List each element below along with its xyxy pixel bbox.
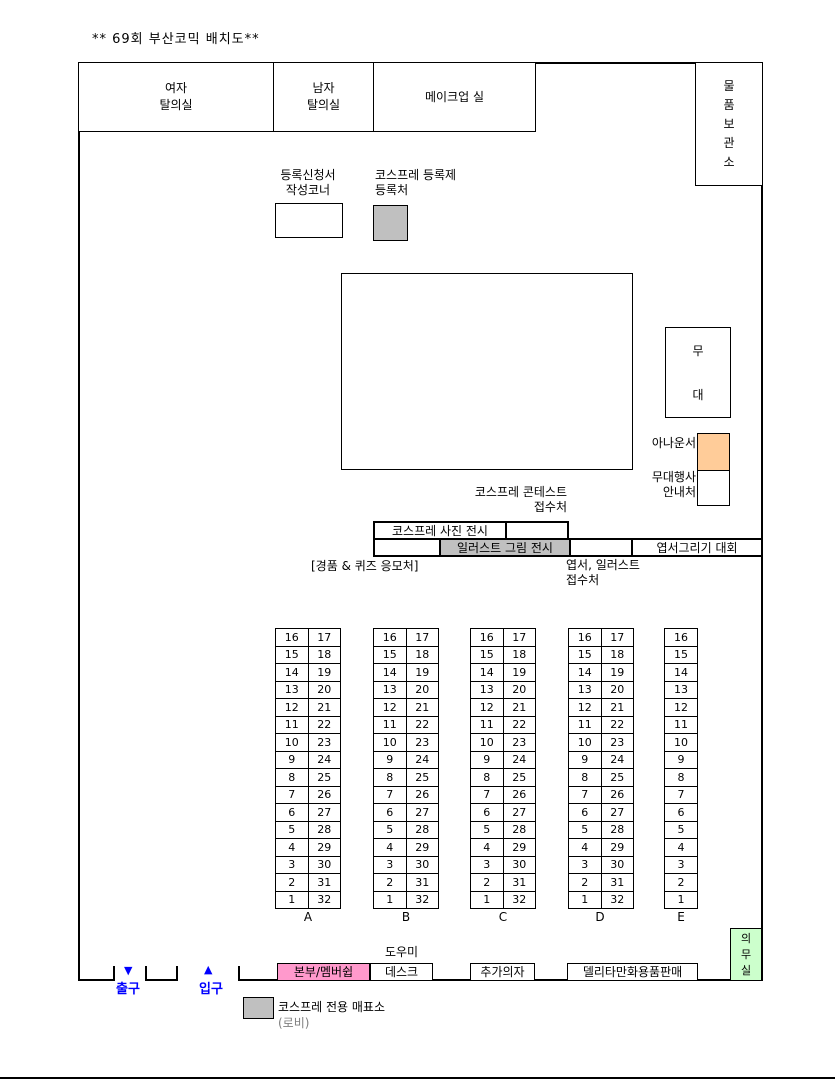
stage-event-info-box [697, 470, 730, 506]
seat-cell: 32 [503, 892, 536, 909]
seat-cell: 14 [665, 664, 697, 681]
seat-row: 14 [665, 664, 697, 682]
seat-row: 231 [471, 874, 535, 892]
seat-row: 132 [471, 892, 535, 909]
seat-cell: 16 [374, 629, 406, 646]
seat-cell: 4 [471, 839, 503, 856]
seat-cell: 32 [308, 892, 341, 909]
room-women-changing: 여자 탈의실 [78, 62, 274, 132]
seat-cell: 5 [569, 822, 601, 839]
seat-cell: 26 [601, 787, 634, 804]
seat-row: 5 [665, 822, 697, 840]
seat-cell: 12 [276, 699, 308, 716]
seat-cell: 12 [471, 699, 503, 716]
seat-row: 429 [276, 839, 340, 857]
seat-cell: 25 [503, 769, 536, 786]
seat-cell: 15 [569, 647, 601, 664]
seat-row: 9 [665, 752, 697, 770]
seat-cell: 25 [308, 769, 341, 786]
seat-row: 231 [374, 874, 438, 892]
seat-cell: 6 [471, 804, 503, 821]
seat-row: 231 [276, 874, 340, 892]
seat-cell: 30 [601, 857, 634, 874]
illust-exhibit-cell: 일러스트 그림 전시 [439, 540, 569, 555]
seat-cell: 26 [406, 787, 439, 804]
seat-cell: 23 [601, 734, 634, 751]
seat-row: 1221 [374, 699, 438, 717]
seat-row: 330 [471, 857, 535, 875]
seat-cell: 4 [569, 839, 601, 856]
page-bottom-rule [0, 1077, 835, 1079]
seat-row: 924 [276, 752, 340, 770]
wall-right [761, 62, 763, 981]
seat-row: 1122 [276, 717, 340, 735]
seat-cell: 7 [471, 787, 503, 804]
stage-event-info-label: 무대행사 안내처 [632, 470, 696, 500]
seat-cell: 31 [308, 874, 341, 891]
seat-cell: 12 [569, 699, 601, 716]
wall-left [78, 62, 80, 981]
seat-cell: 27 [308, 804, 341, 821]
seat-cell: 8 [569, 769, 601, 786]
seat-cell: 8 [374, 769, 406, 786]
seat-row: 627 [276, 804, 340, 822]
seat-cell: 21 [503, 699, 536, 716]
seat-row: 924 [471, 752, 535, 770]
seat-cell: 5 [276, 822, 308, 839]
seat-cell: 9 [471, 752, 503, 769]
hq-membership-box: 본부/멤버쉽 [277, 963, 370, 981]
delita-sales-box: 델리타만화용품판매 [567, 963, 698, 981]
seat-cell: 26 [308, 787, 341, 804]
ticket-booth-box [243, 997, 274, 1019]
seat-cell: 24 [503, 752, 536, 769]
seat-row: 1221 [471, 699, 535, 717]
seat-cell: 13 [374, 682, 406, 699]
seat-row: 132 [374, 892, 438, 909]
seat-cell: 5 [665, 822, 697, 839]
seat-cell: 3 [471, 857, 503, 874]
seat-row: 1419 [471, 664, 535, 682]
seat-cell: 29 [601, 839, 634, 856]
seat-cell: 19 [503, 664, 536, 681]
seat-row: 1617 [276, 629, 340, 647]
seat-cell: 32 [406, 892, 439, 909]
entrance-label: 입구 [191, 982, 231, 997]
seat-cell: 14 [471, 664, 503, 681]
seat-cell: 12 [665, 699, 697, 716]
seat-cell: 13 [665, 682, 697, 699]
table-label-a: A [293, 910, 323, 925]
seat-cell: 22 [406, 717, 439, 734]
seat-cell: 22 [308, 717, 341, 734]
door-jamb [145, 966, 147, 981]
seat-cell: 15 [471, 647, 503, 664]
cosplay-registration-box [373, 205, 408, 241]
seat-cell: 2 [276, 874, 308, 891]
seat-cell: 9 [276, 752, 308, 769]
floorplan-page: ** 69회 부산코믹 배치도** 여자 탈의실 남자 탈의실 메이크업 실 물… [0, 0, 835, 1081]
room-makeup: 메이크업 실 [373, 62, 536, 132]
seat-cell: 10 [569, 734, 601, 751]
seat-cell: 27 [406, 804, 439, 821]
seat-row: 13 [665, 682, 697, 700]
infirmary-label: 의무실 [739, 931, 753, 979]
seat-cell: 23 [503, 734, 536, 751]
seat-table-a: 1617151814191320122111221023924825726627… [275, 628, 341, 909]
seat-cell: 5 [374, 822, 406, 839]
exit-label: 출구 [108, 982, 148, 997]
seat-row: 1023 [471, 734, 535, 752]
seat-row: 1 [665, 892, 697, 909]
seat-cell: 31 [601, 874, 634, 891]
seat-cell: 14 [374, 664, 406, 681]
seat-cell: 4 [665, 839, 697, 856]
seat-cell: 10 [374, 734, 406, 751]
seat-cell: 9 [665, 752, 697, 769]
seat-cell: 20 [601, 682, 634, 699]
seat-row: 1122 [374, 717, 438, 735]
seat-cell: 4 [374, 839, 406, 856]
seat-cell: 1 [374, 892, 406, 909]
seat-cell: 16 [276, 629, 308, 646]
seat-row: 11 [665, 717, 697, 735]
seat-cell: 1 [471, 892, 503, 909]
seat-row: 1617 [374, 629, 438, 647]
seat-cell: 25 [406, 769, 439, 786]
seat-cell: 20 [308, 682, 341, 699]
seat-cell: 32 [601, 892, 634, 909]
seat-cell: 16 [569, 629, 601, 646]
extra-chairs-box: 추가의자 [470, 963, 535, 981]
seat-cell: 31 [503, 874, 536, 891]
entrance-arrow-icon: ▲ [204, 963, 212, 976]
seat-cell: 15 [276, 647, 308, 664]
seat-cell: 19 [308, 664, 341, 681]
seat-cell: 23 [406, 734, 439, 751]
seat-cell: 10 [665, 734, 697, 751]
seat-cell: 13 [276, 682, 308, 699]
seat-row: 726 [276, 787, 340, 805]
seat-cell: 23 [308, 734, 341, 751]
seat-row: 924 [569, 752, 633, 770]
seat-row: 825 [471, 769, 535, 787]
seat-row: 528 [276, 822, 340, 840]
seat-cell: 18 [406, 647, 439, 664]
seat-row: 132 [276, 892, 340, 909]
seat-cell: 5 [471, 822, 503, 839]
seat-row: 1023 [276, 734, 340, 752]
helper-desk-box: 데스크 [370, 963, 433, 981]
seat-cell: 3 [374, 857, 406, 874]
seat-row: 825 [276, 769, 340, 787]
seat-table-c: 1617151814191320122111221023924825726627… [470, 628, 536, 909]
seat-cell: 28 [308, 822, 341, 839]
seat-table-b: 1617151814191320122111221023924825726627… [373, 628, 439, 909]
stage-label: 무대 [691, 329, 705, 417]
contest-reception-label: 코스프레 콘테스트 접수처 [440, 485, 567, 515]
seat-row: 1617 [569, 629, 633, 647]
seat-cell: 1 [276, 892, 308, 909]
seat-row: 528 [569, 822, 633, 840]
seat-cell: 2 [665, 874, 697, 891]
seat-row: 1419 [276, 664, 340, 682]
seat-cell: 11 [665, 717, 697, 734]
seat-cell: 29 [308, 839, 341, 856]
seat-cell: 31 [406, 874, 439, 891]
empty-cell [375, 540, 439, 555]
table-label-c: C [488, 910, 518, 925]
seat-cell: 7 [276, 787, 308, 804]
seat-cell: 26 [503, 787, 536, 804]
seat-cell: 3 [276, 857, 308, 874]
seat-row: 1518 [276, 647, 340, 665]
seat-cell: 14 [276, 664, 308, 681]
seat-cell: 27 [503, 804, 536, 821]
seat-row: 6 [665, 804, 697, 822]
seat-cell: 12 [374, 699, 406, 716]
seat-row: 1122 [471, 717, 535, 735]
seat-cell: 21 [601, 699, 634, 716]
seat-cell: 24 [308, 752, 341, 769]
seat-row: 3 [665, 857, 697, 875]
seat-row: 1221 [276, 699, 340, 717]
seat-cell: 15 [374, 647, 406, 664]
table-label-b: B [391, 910, 421, 925]
seat-cell: 6 [569, 804, 601, 821]
seat-row: 1518 [374, 647, 438, 665]
seat-row: 132 [569, 892, 633, 909]
seat-row: 1419 [374, 664, 438, 682]
seat-cell: 7 [665, 787, 697, 804]
empty-cell [569, 540, 631, 555]
seat-row: 1320 [471, 682, 535, 700]
seat-row: 231 [569, 874, 633, 892]
exit-arrow-icon: ▼ [124, 964, 132, 977]
seat-row: 12 [665, 699, 697, 717]
seat-row: 1023 [374, 734, 438, 752]
seat-row: 1518 [569, 647, 633, 665]
seat-cell: 27 [601, 804, 634, 821]
postcard-illust-reception-label: 엽서, 일러스트 접수처 [566, 558, 676, 588]
seat-cell: 24 [406, 752, 439, 769]
seat-row: 429 [569, 839, 633, 857]
seat-row: 7 [665, 787, 697, 805]
illust-exhibit-bar: 일러스트 그림 전시 엽서그리기 대회 [373, 538, 763, 557]
seat-cell: 21 [406, 699, 439, 716]
seat-cell: 22 [503, 717, 536, 734]
seat-cell: 17 [406, 629, 439, 646]
seat-row: 1320 [569, 682, 633, 700]
seat-cell: 28 [406, 822, 439, 839]
seat-table-d: 1617151814191320122111221023924825726627… [568, 628, 634, 909]
room-men-changing: 남자 탈의실 [273, 62, 374, 132]
seat-cell: 8 [471, 769, 503, 786]
seat-row: 726 [471, 787, 535, 805]
seat-row: 330 [276, 857, 340, 875]
seat-row: 1419 [569, 664, 633, 682]
table-label-e: E [666, 910, 696, 925]
registration-form-label: 등록신청서 작성코너 [268, 168, 348, 198]
seat-cell: 9 [569, 752, 601, 769]
seat-cell: 20 [406, 682, 439, 699]
seat-cell: 2 [471, 874, 503, 891]
seat-cell: 14 [569, 664, 601, 681]
seat-cell: 15 [665, 647, 697, 664]
seat-cell: 30 [406, 857, 439, 874]
seat-cell: 13 [569, 682, 601, 699]
seat-row: 528 [471, 822, 535, 840]
seat-cell: 30 [308, 857, 341, 874]
prize-quiz-label: [경품 & 퀴즈 응모처] [311, 559, 418, 574]
seat-row: 1221 [569, 699, 633, 717]
wall-bottom-segment [145, 979, 178, 981]
seat-row: 825 [374, 769, 438, 787]
seat-cell: 29 [503, 839, 536, 856]
seat-cell: 11 [569, 717, 601, 734]
seat-row: 1320 [374, 682, 438, 700]
seat-cell: 6 [276, 804, 308, 821]
ticket-booth-label: 코스프레 전용 매표소 [278, 1000, 385, 1015]
central-floor-area [341, 273, 633, 470]
seat-table-e: 16151413121110987654321 [664, 628, 698, 909]
door-jamb [238, 966, 240, 981]
seat-row: 627 [374, 804, 438, 822]
empty-cell [505, 523, 567, 538]
seat-cell: 28 [503, 822, 536, 839]
seat-row: 1023 [569, 734, 633, 752]
seat-cell: 3 [569, 857, 601, 874]
cosplay-registration-label: 코스프레 등록제 등록처 [375, 168, 485, 198]
room-storage: 물품보관소 [695, 62, 763, 186]
seat-cell: 11 [471, 717, 503, 734]
seat-cell: 9 [374, 752, 406, 769]
infirmary-box: 의무실 [730, 928, 762, 981]
seat-row: 8 [665, 769, 697, 787]
seat-cell: 2 [569, 874, 601, 891]
seat-cell: 16 [471, 629, 503, 646]
seat-cell: 19 [601, 664, 634, 681]
seat-cell: 6 [665, 804, 697, 821]
seat-row: 528 [374, 822, 438, 840]
seat-row: 429 [374, 839, 438, 857]
seat-cell: 3 [665, 857, 697, 874]
registration-form-box [275, 203, 343, 238]
seat-cell: 1 [665, 892, 697, 909]
seat-row: 1617 [471, 629, 535, 647]
seat-cell: 29 [406, 839, 439, 856]
storage-label: 물품보관소 [722, 77, 736, 172]
lobby-label: (로비) [278, 1016, 309, 1031]
seat-cell: 17 [308, 629, 341, 646]
seat-cell: 1 [569, 892, 601, 909]
seat-cell: 21 [308, 699, 341, 716]
seat-cell: 25 [601, 769, 634, 786]
page-title: ** 69회 부산코믹 배치도** [92, 28, 260, 47]
seat-row: 330 [374, 857, 438, 875]
seat-row: 330 [569, 857, 633, 875]
seat-cell: 17 [601, 629, 634, 646]
seat-cell: 30 [503, 857, 536, 874]
seat-row: 2 [665, 874, 697, 892]
seat-row: 825 [569, 769, 633, 787]
seat-cell: 7 [374, 787, 406, 804]
seat-row: 1320 [276, 682, 340, 700]
seat-cell: 2 [374, 874, 406, 891]
wall-bottom-segment [78, 979, 115, 981]
seat-cell: 16 [665, 629, 697, 646]
postcard-contest-cell: 엽서그리기 대회 [631, 540, 761, 555]
seat-cell: 11 [374, 717, 406, 734]
table-label-d: D [585, 910, 615, 925]
seat-row: 15 [665, 647, 697, 665]
door-jamb [113, 966, 115, 981]
seat-row: 627 [569, 804, 633, 822]
seat-row: 1518 [471, 647, 535, 665]
helper-label: 도우미 [370, 945, 433, 960]
seat-row: 4 [665, 839, 697, 857]
seat-cell: 13 [471, 682, 503, 699]
seat-cell: 10 [276, 734, 308, 751]
seat-row: 10 [665, 734, 697, 752]
seat-row: 429 [471, 839, 535, 857]
seat-cell: 19 [406, 664, 439, 681]
seat-cell: 4 [276, 839, 308, 856]
seat-cell: 18 [601, 647, 634, 664]
seat-cell: 22 [601, 717, 634, 734]
announcer-label: 아나운서 [636, 436, 696, 451]
seat-cell: 11 [276, 717, 308, 734]
seat-row: 726 [569, 787, 633, 805]
seat-row: 726 [374, 787, 438, 805]
announcer-box [697, 433, 730, 471]
seat-cell: 8 [276, 769, 308, 786]
photo-exhibit-cell: 코스프레 사진 전시 [375, 523, 505, 538]
seat-cell: 10 [471, 734, 503, 751]
seat-cell: 7 [569, 787, 601, 804]
seat-row: 1122 [569, 717, 633, 735]
door-jamb [176, 966, 178, 981]
seat-row: 627 [471, 804, 535, 822]
seat-cell: 6 [374, 804, 406, 821]
seat-cell: 28 [601, 822, 634, 839]
seat-cell: 8 [665, 769, 697, 786]
stage-box: 무대 [665, 327, 731, 418]
seat-row: 16 [665, 629, 697, 647]
seat-row: 924 [374, 752, 438, 770]
seat-cell: 24 [601, 752, 634, 769]
seat-cell: 20 [503, 682, 536, 699]
seat-cell: 17 [503, 629, 536, 646]
seat-cell: 18 [308, 647, 341, 664]
seat-cell: 18 [503, 647, 536, 664]
